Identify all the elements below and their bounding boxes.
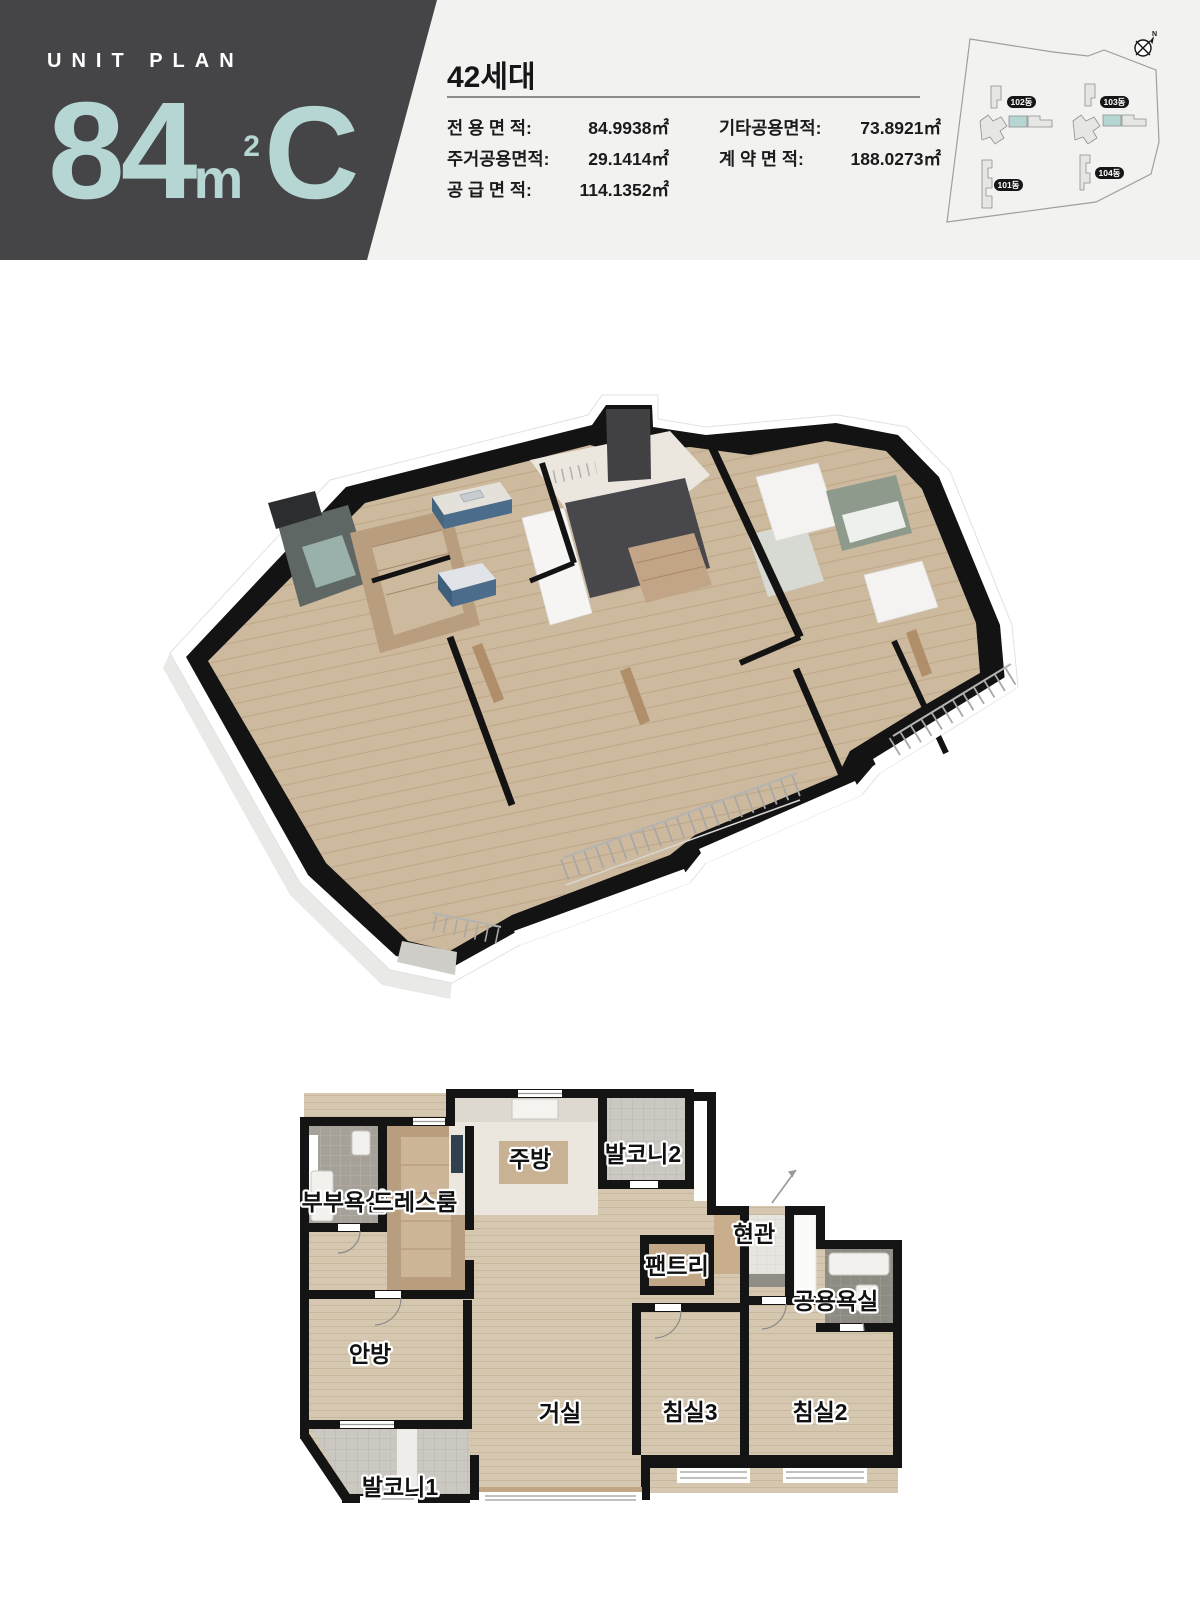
area-label: 기타공용면적: [719, 115, 839, 140]
2d-room-balcony2 [606, 1098, 685, 1180]
2d-side-room [694, 1101, 707, 1201]
room-label-pantry: 팬트리 [645, 1253, 708, 1279]
area-col-left: 전 용 면 적: 84.9938㎡ 주거공용면적: 29.1414㎡ 공 급 면… [447, 112, 695, 205]
area-label: 주거공용면적: [447, 146, 567, 171]
svg-text:101동: 101동 [997, 180, 1019, 190]
area-label: 계 약 면 적: [719, 146, 839, 171]
floor-plan-2d: 부부욕실 드레스룸 주방 발코니2 팬트리 현관 공용욕실 안방 거실 침실3 … [280, 1075, 920, 1545]
2d-kitchen-sink [512, 1099, 558, 1119]
unit-m-sup: 2 [243, 130, 259, 163]
2d-closet-strip [794, 1210, 816, 1296]
site-badge-102: 102동 [1007, 96, 1036, 108]
room-label-common-bath: 공용욕실 [794, 1288, 879, 1314]
area-row: 계 약 면 적: 188.0273㎡ [719, 143, 941, 174]
room-label-bedroom2: 침실2 [792, 1399, 847, 1425]
room-label-dressroom: 드레스룸 [373, 1189, 458, 1215]
svg-text:103동: 103동 [1103, 97, 1125, 107]
site-buildings-103 [1073, 84, 1146, 144]
area-label: 공 급 면 적: [447, 177, 567, 202]
area-row: 공 급 면 적: 114.1352㎡ [447, 174, 695, 205]
svg-text:102동: 102동 [1010, 97, 1032, 107]
site-building-104 [1080, 155, 1090, 190]
area-row: 주거공용면적: 29.1414㎡ [447, 143, 695, 174]
room-label-living: 거실 [539, 1400, 581, 1426]
2d-bay-floor [479, 1455, 642, 1491]
area-value: 29.1414㎡ [567, 146, 669, 171]
unit-area-sqm: m2 [194, 147, 258, 210]
area-table: 전 용 면 적: 84.9938㎡ 주거공용면적: 29.1414㎡ 공 급 면… [447, 112, 941, 205]
area-row: 전 용 면 적: 84.9938㎡ [447, 112, 695, 143]
compass-icon: N [1135, 31, 1157, 56]
site-map: 102동 103동 101동 104동 N [933, 26, 1171, 232]
2d-toilet [352, 1131, 370, 1155]
area-value: 114.1352㎡ [567, 177, 669, 202]
households-title: 42세대 [447, 52, 536, 96]
header-band: UNIT PLAN 84m2C 42세대 전 용 면 적: 84.9938㎡ 주… [0, 0, 1200, 260]
room-label-balcony2: 발코니2 [605, 1141, 681, 1167]
site-boundary [947, 39, 1159, 222]
area-row: 기타공용면적: 73.8921㎡ [719, 112, 941, 143]
2d-doormat [745, 1274, 785, 1287]
site-highlight-unit-103 [1103, 115, 1121, 126]
unit-m: m [194, 147, 243, 210]
svg-text:104동: 104동 [1098, 168, 1120, 178]
room-label-kitchen: 주방 [509, 1146, 551, 1172]
room-label-entry: 현관 [733, 1221, 775, 1247]
area-value: 188.0273㎡ [839, 146, 941, 171]
area-value: 84.9938㎡ [567, 115, 669, 140]
room-label-master-bedroom: 안방 [349, 1341, 391, 1367]
site-highlight-unit-102 [1009, 116, 1027, 127]
site-buildings-102 [980, 86, 1052, 144]
room-label-bedroom3: 침실3 [662, 1399, 717, 1425]
area-value: 73.8921㎡ [839, 115, 941, 140]
unit-type-letter: C [264, 79, 359, 226]
svg-text:N: N [1152, 31, 1157, 38]
room-label-balcony1: 발코니1 [362, 1474, 438, 1500]
site-building-101 [982, 160, 992, 208]
site-badge-101: 101동 [994, 179, 1023, 191]
unit-plan-page: UNIT PLAN 84m2C 42세대 전 용 면 적: 84.9938㎡ 주… [0, 0, 1200, 1600]
title-divider [447, 96, 920, 98]
area-col-right: 기타공용면적: 73.8921㎡ 계 약 면 적: 188.0273㎡ [719, 112, 941, 205]
site-badge-103: 103동 [1100, 96, 1129, 108]
unit-plan-eyebrow: UNIT PLAN [47, 50, 244, 73]
isometric-3d-plan [150, 385, 1030, 1005]
3d-duct-shaft [606, 409, 651, 482]
unit-type-title: 84m2C [48, 72, 359, 231]
area-label: 전 용 면 적: [447, 115, 567, 140]
unit-plan-block: UNIT PLAN 84m2C [0, 0, 437, 260]
2d-fridge [451, 1135, 463, 1173]
site-badge-104: 104동 [1095, 167, 1124, 179]
2d-common-bathtub [829, 1253, 889, 1275]
unit-area-number: 84 [48, 74, 194, 228]
